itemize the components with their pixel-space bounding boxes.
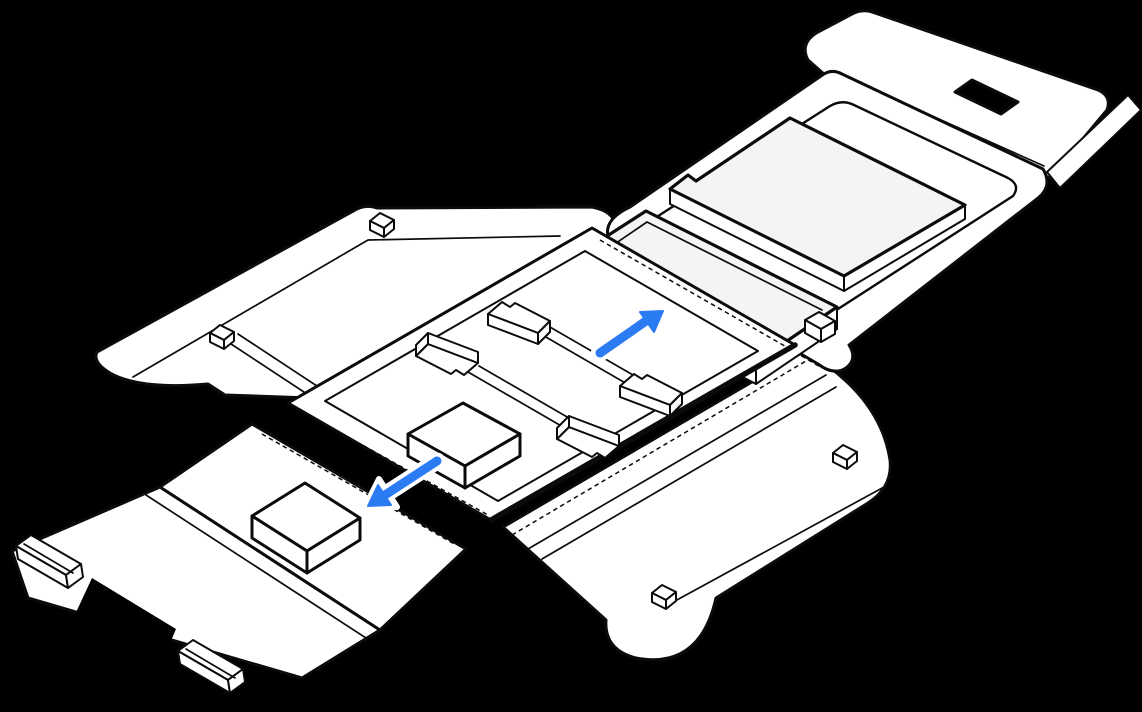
- screenshot-canvas: [0, 0, 1142, 712]
- packaging-illustration: [0, 0, 1142, 712]
